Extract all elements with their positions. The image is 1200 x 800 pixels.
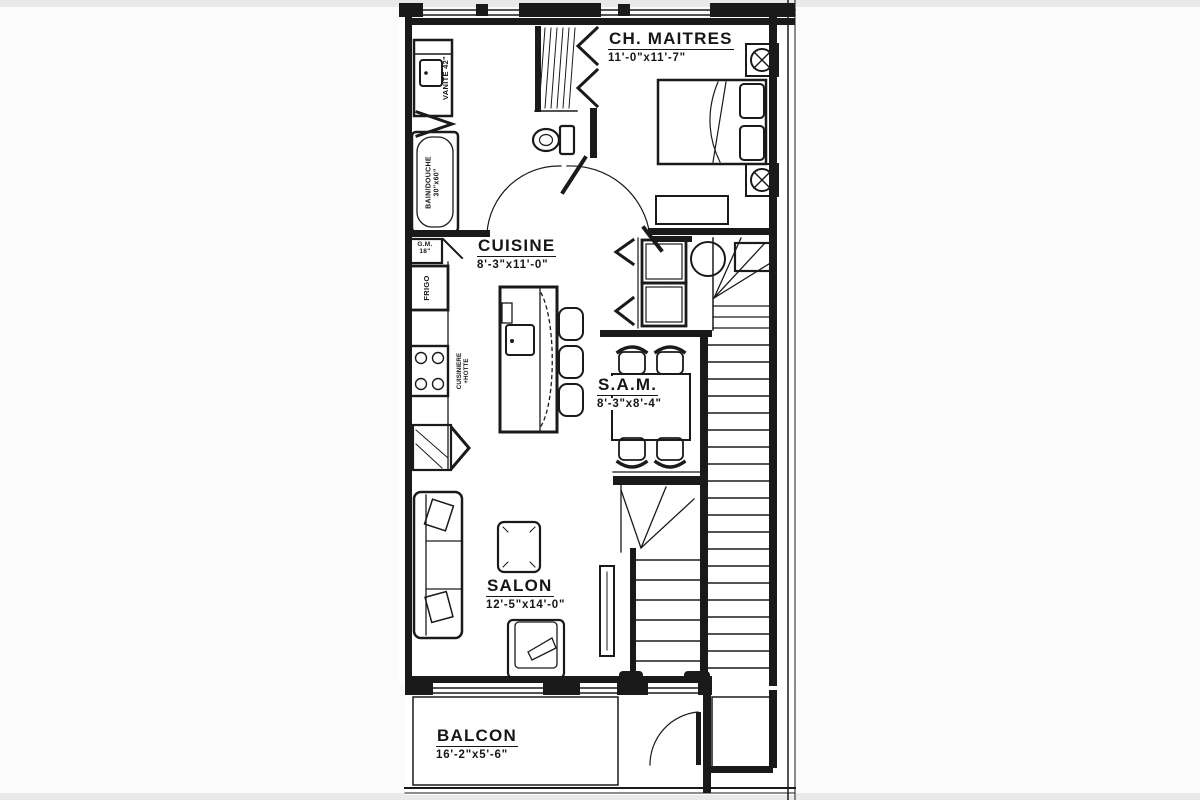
room-dims-master: 11'-0"x11'-7" [608,52,734,64]
room-dims-dining: 8'-3"x8'-4" [597,398,662,410]
room-label-kitchen: CUISINE 8'-3"x11'-0" [477,237,556,271]
pantry-label-line2: 18" [410,248,440,255]
room-dims-living: 12'-5"x14'-0" [486,599,565,611]
room-name-balcony: BALCON [436,727,518,747]
pantry-label-line1: G.M. [410,241,440,248]
room-label-balcony: BALCON 16'-2"x5'-6" [436,727,518,761]
room-name-master: CH. MAITRES [608,30,734,50]
room-label-master: CH. MAITRES 11'-0"x11'-7" [608,30,734,64]
stove-label-line2: +HOTTE [463,342,470,400]
stove-label-line1: CUISINIERE [456,342,463,400]
room-dims-kitchen: 8'-3"x11'-0" [477,259,556,271]
fridge-label: FRIGO [423,268,433,308]
floor-plan-page: { "page": { "background": "#fbfbfb", "in… [0,0,1200,800]
room-dims-balcony: 16'-2"x5'-6" [436,749,518,761]
room-name-dining: S.A.M. [597,376,658,396]
bathtub-label-line1: BAIN/DOUCHE [426,143,434,223]
top-windows [399,3,795,17]
room-name-living: SALON [486,577,554,597]
room-name-kitchen: CUISINE [477,237,556,257]
bathtub-label-line2: 30"x60" [434,143,442,223]
pantry-label: G.M. 18" [410,241,440,256]
vanity-label: VANITE 42" [442,42,452,114]
room-label-living: SALON 12'-5"x14'-0" [486,577,565,611]
stove-label: CUISINIERE +HOTTE [456,342,472,400]
bathtub-label: BAIN/DOUCHE 30"x60" [426,143,443,223]
entry-door-leaf [696,712,701,765]
room-label-dining: S.A.M. 8'-3"x8'-4" [597,376,662,410]
